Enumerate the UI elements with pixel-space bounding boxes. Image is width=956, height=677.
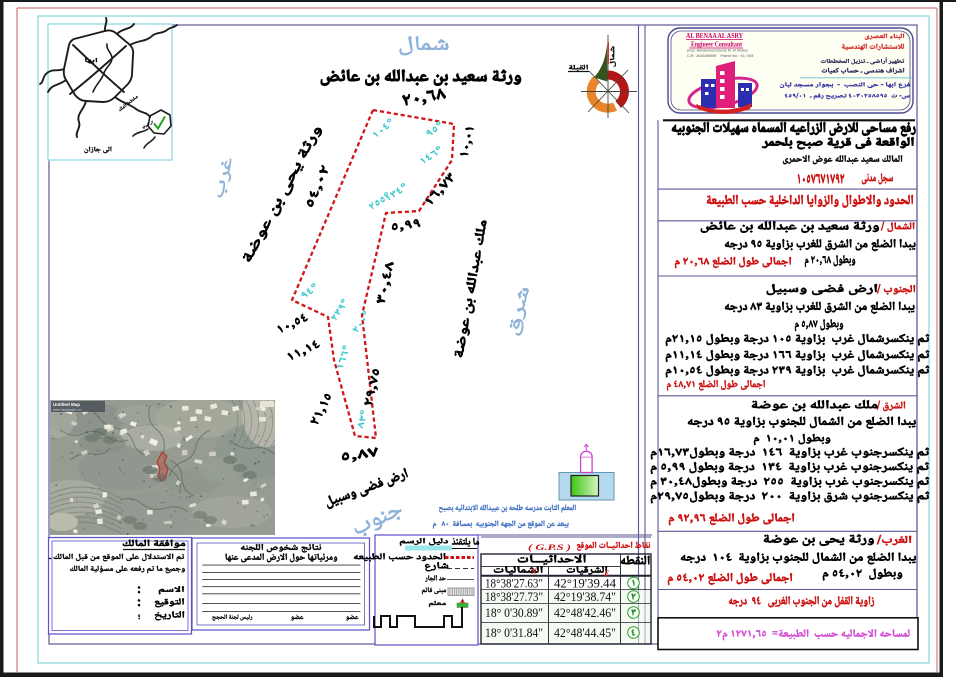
svg-text:42°19'38.74": 42°19'38.74" <box>554 589 616 604</box>
svg-text:42°48'42.46": 42°48'42.46" <box>554 605 616 620</box>
svg-text:prop: Mohammed Eberts M. Al Sh: prop: Mohammed Eberts M. Al Shatey <box>687 49 748 53</box>
svg-text:AL BENAA AL ASRY: AL BENAA AL ASRY <box>686 31 743 40</box>
svg-text:18° 0'31.84": 18° 0'31.84" <box>485 625 543 640</box>
svg-text:( G.P.S ): ( G.P.S ) <box>528 543 572 552</box>
svg-text:18° 0'30.89": 18° 0'30.89" <box>485 605 543 620</box>
svg-text:Engineer Consultant: Engineer Consultant <box>691 42 743 49</box>
svg-text:42°48'44.45": 42°48'44.45" <box>554 625 616 640</box>
svg-text:18°38'27.73": 18°38'27.73" <box>485 589 543 604</box>
svg-text:C.R : 4030298595 Patent No: C.R : 4030298595 Patent No : 91 / 609 <box>687 54 753 58</box>
svg-text:www.maps.google.com: www.maps.google.com <box>53 408 82 412</box>
svg-text:Untitled Map: Untitled Map <box>53 402 80 407</box>
